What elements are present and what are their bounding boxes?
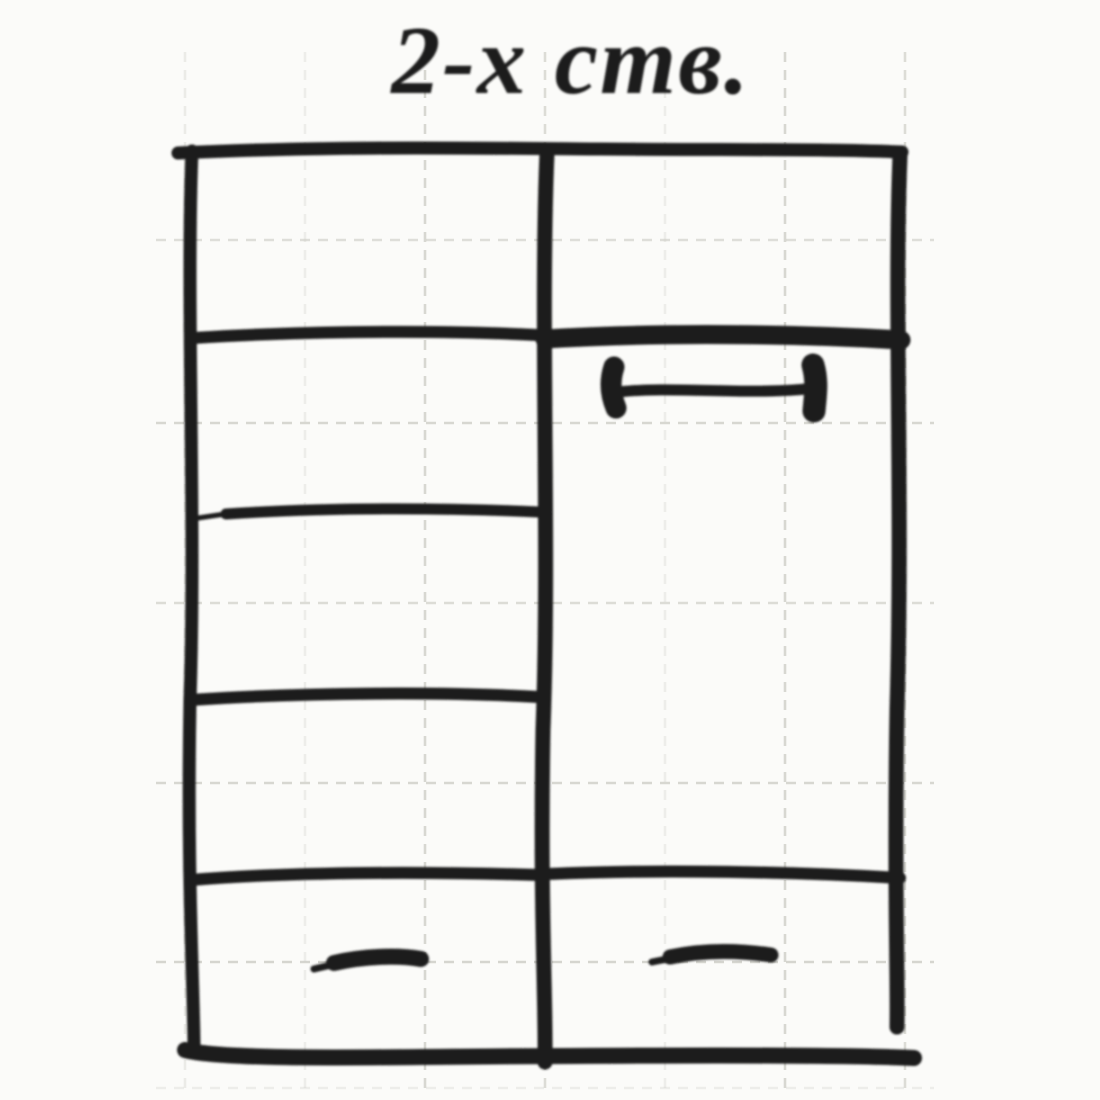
diagram-title: 2-х ств. (389, 7, 750, 115)
rail-end-bracket-left (611, 367, 616, 408)
drawer-top-line-right (548, 871, 900, 878)
cabinet-left-side (189, 151, 194, 1044)
center-divider (542, 153, 547, 1062)
wardrobe-sketch-page: 2-х ств. (0, 0, 1100, 1100)
shelf-line-1 (193, 332, 537, 338)
rail-end-bracket-right (813, 365, 816, 411)
shelf-line-3 (190, 694, 539, 700)
drawer-handle-left (334, 957, 421, 963)
wardrobe-diagram: 2-х ств. (0, 0, 1100, 1100)
drawer-handle-right (670, 951, 771, 957)
right-compartment-shelf (545, 335, 901, 340)
shelf-line-2 (226, 509, 539, 514)
drawer-top-line-left (191, 873, 541, 880)
cabinet-right-side (896, 156, 900, 1027)
hanging-rail-bar (618, 389, 806, 392)
